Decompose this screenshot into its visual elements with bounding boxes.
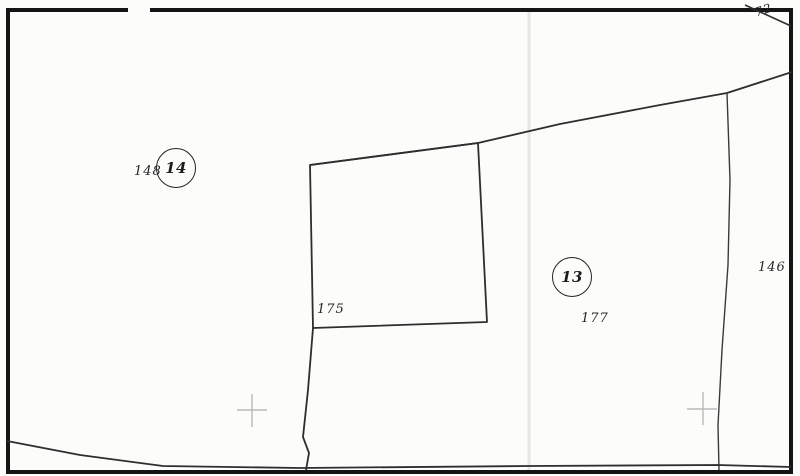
boundary-parcel-146 (718, 93, 730, 470)
boundary-below-parcel-175 (303, 328, 313, 470)
parcel-148-label: 148 (134, 165, 162, 178)
survey-cross-icon (237, 394, 267, 427)
boundary-bottom (7, 441, 791, 468)
survey-cross-icon (687, 392, 717, 425)
parcel-13-circle: 13 (552, 257, 592, 297)
parcel-175-label: 175 (317, 303, 345, 316)
plan-frame-border (8, 10, 791, 472)
parcel-13-number: 13 (561, 270, 583, 285)
plan-linework (0, 0, 800, 476)
parcel-146-label: 146 (758, 261, 786, 274)
frame-border-gap (128, 6, 150, 14)
cadastral-plan: 14 13 148 175 177 146 72 (0, 0, 800, 476)
parcel-14-number: 14 (165, 161, 187, 176)
parcel-175-outline (310, 143, 487, 328)
boundary-main-diagonal (310, 72, 792, 165)
parcel-177-label: 177 (581, 312, 609, 325)
parcel-14-circle: 14 (156, 148, 196, 188)
